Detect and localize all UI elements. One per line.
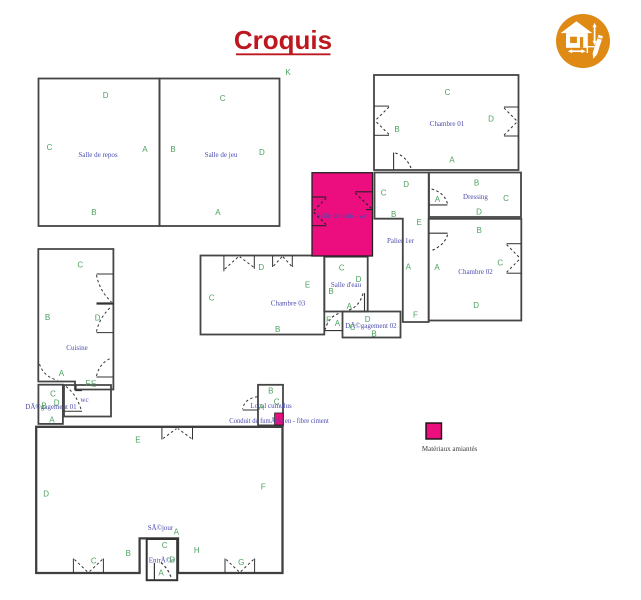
svg-text:Croquis: Croquis bbox=[234, 25, 332, 55]
svg-text:A: A bbox=[449, 156, 455, 165]
svg-text:A: A bbox=[158, 569, 164, 578]
svg-text:A: A bbox=[435, 195, 441, 204]
svg-text:B: B bbox=[328, 287, 333, 296]
svg-text:A: A bbox=[406, 263, 412, 272]
svg-text:D: D bbox=[488, 115, 494, 124]
svg-text:C: C bbox=[274, 398, 280, 407]
svg-text:A: A bbox=[259, 403, 265, 412]
svg-text:B: B bbox=[126, 549, 131, 558]
svg-text:C: C bbox=[350, 323, 356, 332]
svg-text:B: B bbox=[45, 313, 50, 322]
svg-text:C: C bbox=[339, 264, 345, 273]
svg-text:A: A bbox=[215, 208, 221, 217]
svg-text:D: D bbox=[365, 315, 371, 324]
svg-text:D: D bbox=[169, 556, 175, 565]
svg-text:Chambre 03: Chambre 03 bbox=[271, 300, 306, 308]
svg-text:B: B bbox=[477, 226, 482, 235]
svg-text:D: D bbox=[43, 490, 49, 499]
svg-text:D: D bbox=[473, 301, 479, 310]
svg-text:Palier 1er: Palier 1er bbox=[387, 237, 415, 245]
svg-text:A: A bbox=[142, 145, 148, 154]
svg-text:B: B bbox=[371, 330, 376, 339]
svg-text:K: K bbox=[285, 68, 291, 77]
svg-text:Cuisine: Cuisine bbox=[66, 344, 87, 352]
svg-text:B: B bbox=[170, 145, 175, 154]
svg-text:C: C bbox=[162, 541, 168, 550]
svg-text:Chambre 02: Chambre 02 bbox=[458, 268, 493, 276]
svg-text:C: C bbox=[503, 194, 509, 203]
svg-text:SÃ©jour: SÃ©jour bbox=[148, 524, 174, 532]
svg-text:wc: wc bbox=[80, 396, 88, 404]
svg-text:C: C bbox=[445, 88, 451, 97]
svg-text:C: C bbox=[50, 390, 56, 399]
svg-text:B: B bbox=[268, 387, 273, 396]
svg-text:B: B bbox=[391, 210, 396, 219]
svg-text:Salle de bain - wc: Salle de bain - wc bbox=[317, 212, 367, 220]
svg-text:Dressing: Dressing bbox=[463, 193, 488, 201]
svg-text:D: D bbox=[356, 275, 362, 284]
svg-text:E: E bbox=[91, 380, 96, 389]
svg-text:DÃ©gagement 01: DÃ©gagement 01 bbox=[25, 403, 77, 411]
svg-text:A: A bbox=[49, 416, 55, 425]
svg-text:A: A bbox=[347, 302, 353, 311]
svg-text:D: D bbox=[403, 180, 409, 189]
svg-text:H: H bbox=[194, 546, 200, 555]
svg-text:E: E bbox=[305, 281, 310, 290]
svg-text:F: F bbox=[85, 379, 90, 388]
svg-text:B: B bbox=[474, 179, 479, 188]
svg-text:Matériaux amiantés: Matériaux amiantés bbox=[422, 445, 478, 453]
svg-text:C: C bbox=[77, 261, 83, 270]
svg-text:D: D bbox=[95, 314, 101, 323]
svg-text:C: C bbox=[220, 94, 226, 103]
svg-text:D: D bbox=[476, 208, 482, 217]
svg-text:F: F bbox=[326, 316, 331, 325]
svg-text:D: D bbox=[259, 148, 265, 157]
svg-text:Salle de jeu: Salle de jeu bbox=[205, 151, 238, 159]
svg-text:B: B bbox=[394, 125, 399, 134]
svg-text:E: E bbox=[135, 436, 140, 445]
svg-text:F: F bbox=[261, 483, 266, 492]
svg-text:A: A bbox=[434, 263, 440, 272]
svg-text:C: C bbox=[91, 557, 97, 566]
svg-text:A: A bbox=[335, 319, 341, 328]
svg-text:A: A bbox=[174, 528, 180, 537]
svg-text:A: A bbox=[59, 369, 65, 378]
svg-text:G: G bbox=[238, 558, 244, 567]
svg-text:C: C bbox=[381, 189, 387, 198]
svg-text:D: D bbox=[103, 91, 109, 100]
svg-text:D: D bbox=[54, 399, 60, 408]
svg-text:Local cumulus: Local cumulus bbox=[250, 402, 292, 410]
svg-text:Salle de repos: Salle de repos bbox=[78, 151, 118, 159]
svg-text:C: C bbox=[47, 143, 53, 152]
svg-text:Chambre 01: Chambre 01 bbox=[430, 120, 465, 128]
svg-text:E: E bbox=[417, 218, 422, 227]
svg-text:B: B bbox=[275, 325, 280, 334]
svg-text:D: D bbox=[258, 263, 264, 272]
svg-text:C: C bbox=[497, 259, 503, 268]
svg-text:Conduit de fumÃ©e en - fibre c: Conduit de fumÃ©e en - fibre ciment bbox=[229, 417, 329, 425]
svg-text:B: B bbox=[91, 208, 96, 217]
svg-text:F: F bbox=[413, 311, 418, 320]
svg-text:C: C bbox=[209, 294, 215, 303]
svg-text:B: B bbox=[41, 402, 46, 411]
